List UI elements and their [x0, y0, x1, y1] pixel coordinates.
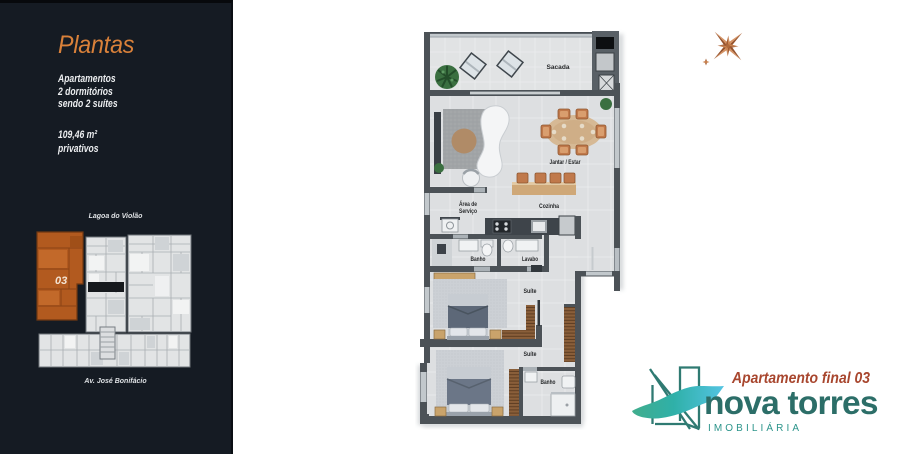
svg-text:Banho: Banho [471, 257, 486, 263]
svg-text:Sacada: Sacada [547, 65, 571, 71]
svg-text:Suíte: Suíte [524, 289, 538, 295]
svg-text:Cozinha: Cozinha [539, 204, 560, 210]
svg-text:Suíte: Suíte [524, 352, 538, 358]
svg-text:Lavabo: Lavabo [522, 257, 538, 263]
svg-text:Serviço: Serviço [459, 209, 477, 215]
svg-text:Jantar / Estar: Jantar / Estar [550, 160, 582, 166]
svg-text:Área de: Área de [459, 201, 478, 208]
svg-text:Banho: Banho [541, 380, 556, 386]
svg-text:03: 03 [55, 275, 67, 287]
